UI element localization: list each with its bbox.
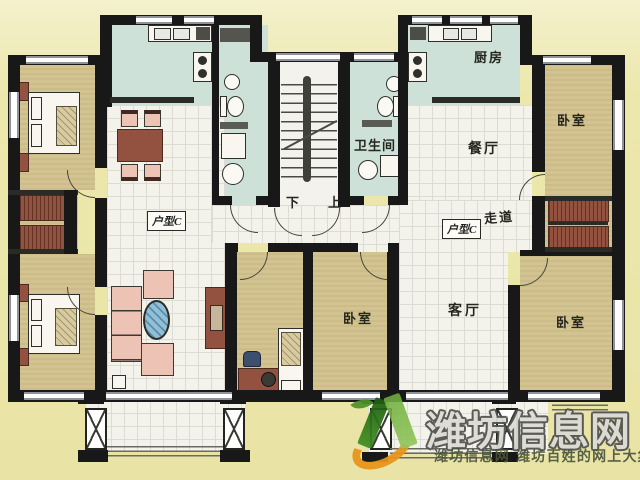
wall <box>388 196 400 205</box>
wall <box>225 250 237 390</box>
room-label-kitchen: 厨房 <box>474 47 504 66</box>
toilet-bowl <box>377 96 394 117</box>
room-label-bathroom: 卫生间 <box>354 135 396 154</box>
wall <box>532 65 545 172</box>
sink-basin <box>173 28 190 40</box>
window <box>354 53 394 61</box>
bath-cabinet <box>220 28 250 42</box>
sink-basin <box>461 28 477 40</box>
quilt <box>56 106 77 146</box>
quilt <box>281 332 301 366</box>
wall <box>100 15 262 25</box>
wall <box>398 15 408 205</box>
wall <box>532 196 545 252</box>
wall <box>95 198 107 287</box>
toilet-tank <box>220 96 227 117</box>
unit-type-label-right: 户型C <box>442 219 481 239</box>
counter-wall <box>432 97 520 103</box>
wall <box>212 25 219 205</box>
bedroom-top-right-floor <box>545 65 612 196</box>
wall <box>64 190 77 254</box>
balcony-post <box>220 450 250 462</box>
stairs-down-label: 下 <box>286 192 299 211</box>
balcony-left-floor <box>85 400 245 452</box>
floor-lamp <box>112 375 126 389</box>
wall <box>520 15 532 65</box>
pillow <box>31 97 42 120</box>
window <box>490 16 518 24</box>
washing-machine <box>222 163 244 185</box>
counter-wall <box>110 97 194 103</box>
dining-chair <box>121 110 138 127</box>
floor-plan: 厨房 卫生间 餐厅 走道 客厅 卧室 卧室 卧室 户型C 户型C 下 上 潍坊信… <box>0 0 640 480</box>
window <box>9 295 19 341</box>
window <box>276 53 340 61</box>
pillow <box>31 325 42 347</box>
wall <box>338 62 350 207</box>
room-label-bedroom-bottom-right: 卧室 <box>556 312 586 331</box>
dining-table <box>117 129 163 162</box>
window <box>450 16 482 24</box>
wall <box>95 65 107 168</box>
tv <box>210 305 223 331</box>
wall <box>212 196 232 205</box>
wardrobe <box>548 199 609 222</box>
wall <box>545 247 612 252</box>
dining-chair <box>144 164 161 181</box>
desk-chair <box>243 351 261 367</box>
balcony-column <box>85 408 107 450</box>
stair-rail <box>303 76 311 182</box>
wall <box>268 243 358 252</box>
living-right-floor <box>399 252 508 392</box>
wall <box>95 315 107 392</box>
wall <box>303 243 313 392</box>
window <box>412 16 442 24</box>
room-label-dining: 餐厅 <box>468 138 500 158</box>
balcony-post <box>78 450 108 462</box>
pillow <box>31 124 42 147</box>
window <box>24 392 84 400</box>
wall <box>545 196 612 201</box>
room-label-living: 客厅 <box>448 300 482 320</box>
window <box>26 56 88 64</box>
toilet-bowl <box>227 96 244 117</box>
sofa <box>111 286 142 362</box>
room-label-hallway: 走道 <box>483 206 515 228</box>
stove-burner <box>198 69 207 78</box>
window <box>184 16 214 24</box>
stove-burner <box>413 69 422 78</box>
stove-burner <box>413 56 422 65</box>
wall <box>388 243 399 252</box>
pillow <box>31 299 42 321</box>
balcony-column <box>223 408 245 450</box>
stove-burner <box>198 56 207 65</box>
armchair <box>141 343 174 376</box>
wash-basin <box>224 74 240 90</box>
cooktop-hood <box>196 27 210 40</box>
window <box>9 92 19 138</box>
wall <box>350 196 364 205</box>
wall <box>250 15 262 62</box>
wall <box>225 243 238 252</box>
wall <box>508 285 520 392</box>
dining-chair <box>121 164 138 181</box>
wardrobe <box>548 226 609 248</box>
window <box>136 16 172 24</box>
watermark-tagline: 潍坊信息网 潍坊百姓的网上大集 <box>434 446 640 466</box>
coffee-table <box>143 300 170 340</box>
desk-stool <box>261 372 276 387</box>
room-label-bedroom-middle: 卧室 <box>343 308 373 327</box>
balcony-railing <box>107 446 223 459</box>
unit-type-label-left: 户型C <box>147 211 186 231</box>
room-label-bedroom-top-right: 卧室 <box>557 110 587 129</box>
window <box>543 56 591 64</box>
washing-machine <box>358 160 378 180</box>
washer-box <box>221 133 246 159</box>
watermark-logo <box>348 390 428 470</box>
cooktop-hood <box>410 27 426 40</box>
sink-basin <box>154 28 171 40</box>
wall <box>387 252 399 392</box>
wall <box>548 222 608 225</box>
wall <box>256 196 268 205</box>
kitchen-counter <box>428 25 492 42</box>
balcony-door-window <box>106 392 232 400</box>
dining-chair <box>144 110 161 127</box>
armchair <box>143 270 174 299</box>
window <box>613 100 624 150</box>
bath-shelf <box>362 120 392 127</box>
sink-basin <box>443 28 459 40</box>
wall <box>268 62 280 207</box>
window <box>613 300 624 350</box>
stairs-up-label: 上 <box>328 192 341 211</box>
bath-shelf <box>220 122 248 129</box>
quilt <box>55 308 77 346</box>
